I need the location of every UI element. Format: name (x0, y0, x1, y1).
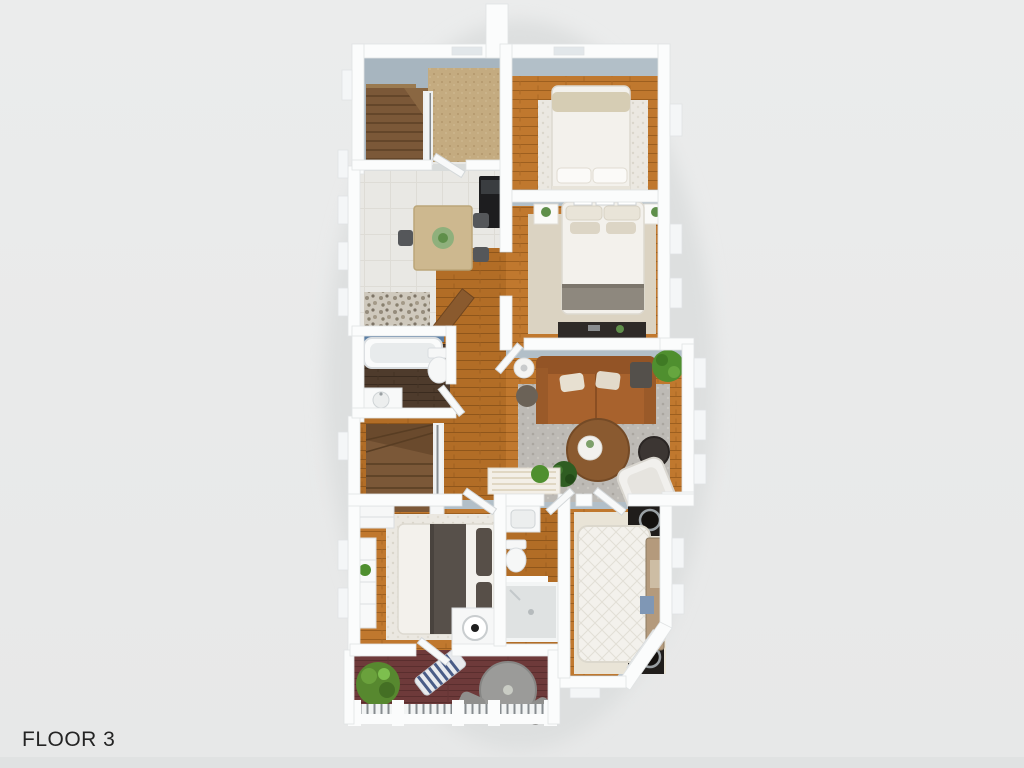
toilet-icon (506, 540, 526, 572)
floor-label: FLOOR 3 (22, 728, 115, 752)
dining-table-icon (414, 206, 472, 270)
staircase-icon (366, 88, 428, 164)
throw-pillow-icon (559, 372, 585, 392)
bedroom-middle-right (528, 192, 668, 340)
double-bed-icon (552, 86, 630, 194)
dresser-plant-icon (359, 564, 371, 576)
shower-icon (504, 584, 558, 640)
throw-pillow-icon (595, 371, 621, 391)
potted-plant-icon (652, 350, 684, 382)
pouf-icon (516, 385, 538, 407)
dark-throw-icon (630, 362, 652, 388)
floor-plan-render (0, 0, 1024, 768)
floor-lamp-icon (514, 358, 534, 378)
nightstand-left-icon (534, 204, 558, 224)
bedroom-top-right (538, 86, 648, 194)
lamp-table-icon (452, 608, 498, 648)
double-bed-icon (562, 202, 644, 314)
handrail-icon (366, 84, 416, 88)
page-bottom-strip (0, 757, 1024, 768)
dark-dresser-icon (558, 322, 646, 340)
leather-sofa-icon (536, 356, 656, 424)
shrub-icon (356, 662, 400, 706)
bedroom-bottom-left (354, 506, 500, 648)
stair-railing-icon (424, 92, 432, 164)
stair-landing-carpet (428, 68, 504, 162)
floor-plan-page: FLOOR 3 (0, 0, 1024, 768)
console-table-icon (488, 465, 560, 494)
closet-icon (356, 506, 394, 528)
vanity-sink-icon (506, 506, 540, 532)
